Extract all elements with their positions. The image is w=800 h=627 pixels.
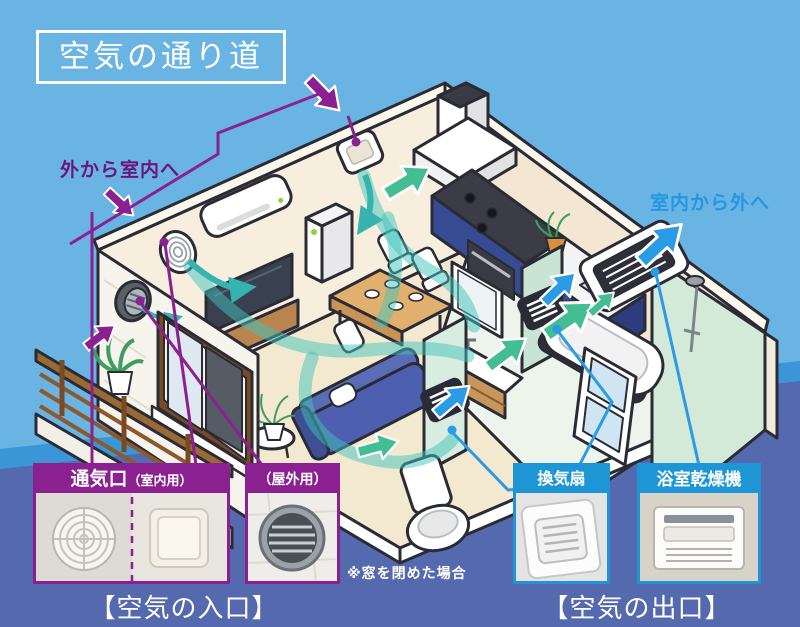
infographic-root: 空気の通り道 外から室内へ 室内から外へ 通気口（室内用） （屋外用） (0, 0, 800, 627)
fan-box-heading: 換気扇 (516, 466, 607, 493)
outdoor-vent-photo-box: （屋外用） (245, 463, 340, 584)
caption-air-outlet: 【空気の出口】 (512, 588, 762, 625)
fan-photo-art (516, 493, 607, 581)
dryer-photo (640, 493, 758, 581)
outdoor-vent-photo-icon (260, 506, 324, 570)
fan-photo-box: 換気扇 (513, 463, 610, 584)
outdoor-vent-photo (248, 493, 337, 581)
dryer-photo-art (640, 493, 758, 581)
caption-air-inlet: 【空気の入口】 (28, 588, 340, 625)
indoor-vent-photo (36, 493, 227, 581)
dryer-photo-box: 浴室乾燥機 (637, 463, 761, 584)
fan-photo (516, 493, 607, 581)
outdoor-box-heading: （屋外用） (248, 466, 337, 493)
indoor-vent-photo-art (36, 493, 227, 581)
vent-box-heading: 通気口（室内用） (36, 466, 227, 493)
label-inside-to-outside: 室内から外へ (650, 188, 770, 215)
round-vent-photo-icon (53, 508, 115, 570)
air-purifier-icon (306, 204, 352, 282)
bathroom-dryer-photo-icon (654, 507, 744, 569)
vent-box-subtitle: （室内用） (128, 473, 193, 488)
dryer-box-heading: 浴室乾燥機 (640, 466, 758, 493)
vent-photo-box: 通気口（室内用） (33, 463, 230, 584)
note-windows-closed: ※窓を閉めた場合 (347, 563, 467, 583)
page-title: 空気の通り道 (36, 30, 286, 84)
ventilation-fan-photo-icon (521, 499, 601, 579)
outdoor-vent-photo-art (248, 493, 337, 581)
label-outside-to-inside: 外から室内へ (60, 155, 180, 182)
square-vent-photo-icon (150, 509, 208, 567)
vent-box-title: 通気口 (70, 469, 127, 490)
